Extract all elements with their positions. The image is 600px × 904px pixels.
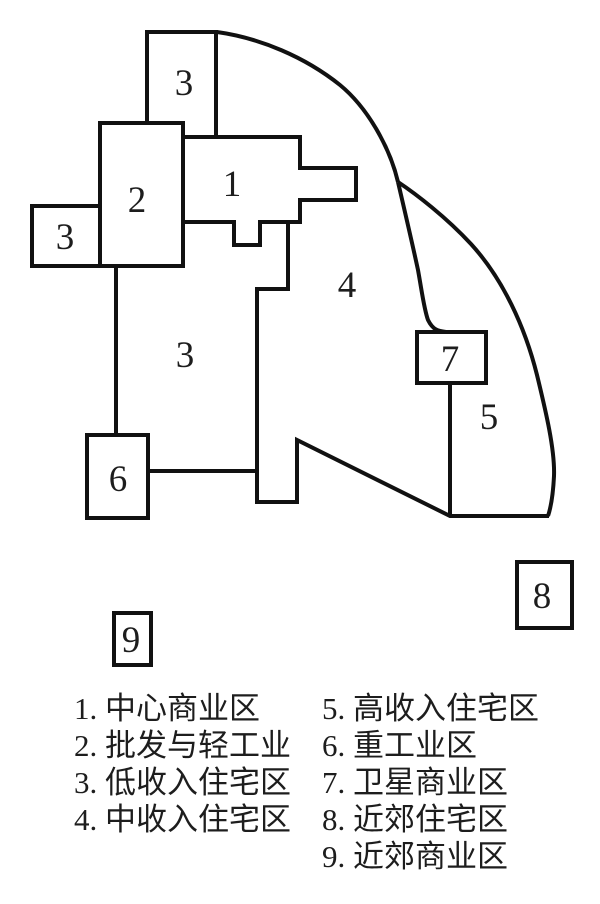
legend-item-3: 3. 低收入住宅区 <box>74 764 291 801</box>
region-label-3-left: 3 <box>56 217 75 258</box>
legend-item-6: 6. 重工业区 <box>322 727 539 764</box>
region-label-2: 2 <box>128 180 147 221</box>
region-label-1: 1 <box>223 164 242 205</box>
legend-item-4: 4. 中收入住宅区 <box>74 801 291 838</box>
region-label-4: 4 <box>338 265 357 306</box>
region-label-9: 9 <box>122 620 141 661</box>
legend-column-left: 1. 中心商业区 2. 批发与轻工业 3. 低收入住宅区 4. 中收入住宅区 <box>74 690 291 838</box>
legend-column-right: 5. 高收入住宅区 6. 重工业区 7. 卫星商业区 8. 近郊住宅区 9. 近… <box>322 690 539 875</box>
legend-item-8: 8. 近郊住宅区 <box>322 801 539 838</box>
legend-item-9: 9. 近郊商业区 <box>322 838 539 875</box>
region-label-3-top: 3 <box>175 63 194 104</box>
region-label-7: 7 <box>441 339 460 380</box>
city-map: 1 2 3 3 3 4 5 6 7 8 9 <box>0 0 600 690</box>
district-3-4-boundary <box>257 220 549 516</box>
legend-item-1: 1. 中心商业区 <box>74 690 291 727</box>
legend-item-5: 5. 高收入住宅区 <box>322 690 539 727</box>
region-label-3-mid: 3 <box>176 335 195 376</box>
multiple-nuclei-model-diagram: 1 2 3 3 3 4 5 6 7 8 9 1. 中心商业区 2. 批发与轻工业… <box>0 0 600 904</box>
region-1-outline <box>183 137 356 245</box>
inner-boundary-curve <box>398 182 446 332</box>
region-label-8: 8 <box>533 576 552 617</box>
legend-item-2: 2. 批发与轻工业 <box>74 727 291 764</box>
region-label-5: 5 <box>480 397 499 438</box>
legend-item-7: 7. 卫星商业区 <box>322 764 539 801</box>
region-label-6: 6 <box>109 459 128 500</box>
